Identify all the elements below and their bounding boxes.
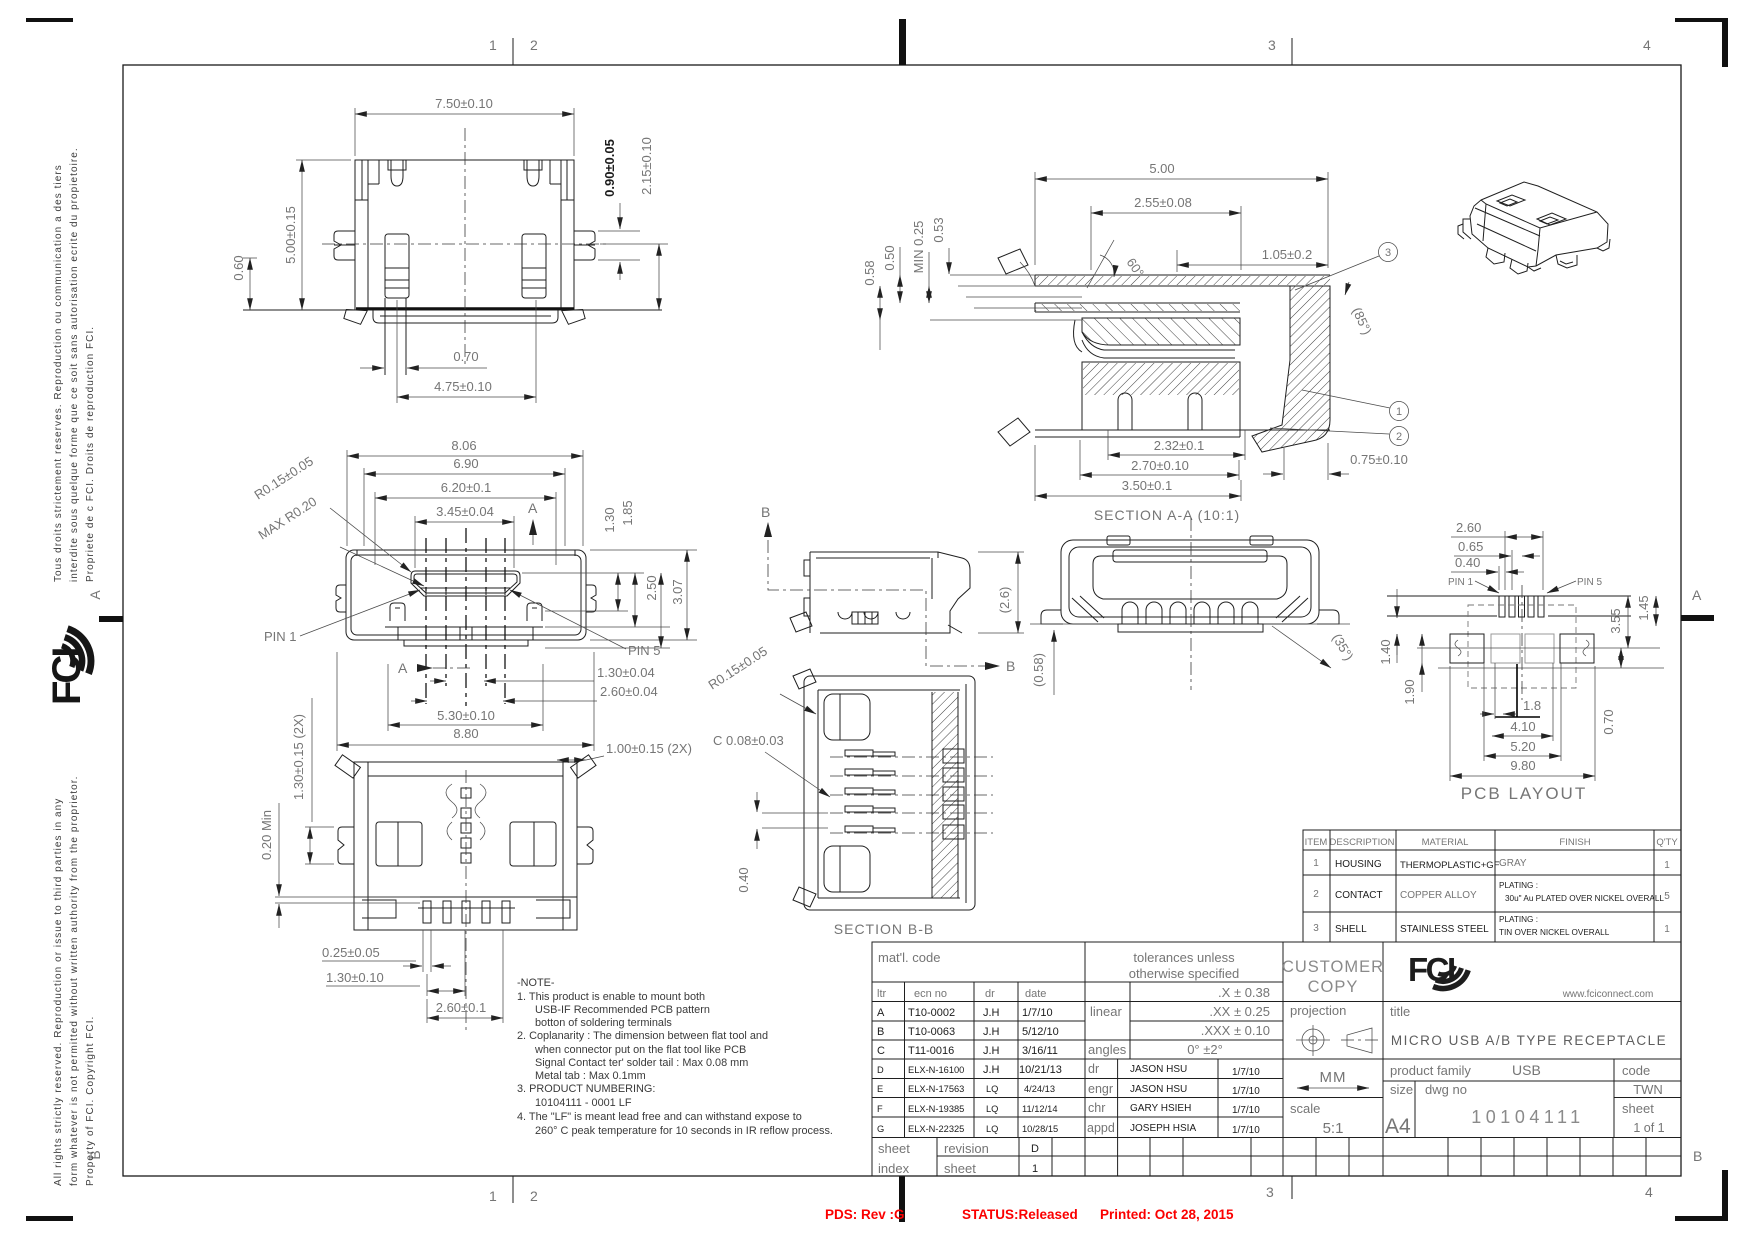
svg-text:CUSTOMER: CUSTOMER — [1282, 958, 1384, 976]
svg-text:0.25±0.05: 0.25±0.05 — [322, 945, 380, 960]
svg-text:PIN 1: PIN 1 — [264, 629, 297, 644]
svg-text:10/28/15: 10/28/15 — [1022, 1124, 1058, 1134]
svg-text:sheet: sheet — [1622, 1101, 1654, 1116]
svg-text:PDS: Rev :G: PDS: Rev :G — [825, 1207, 905, 1222]
svg-text:G: G — [877, 1124, 884, 1134]
svg-text:COPY: COPY — [1308, 978, 1359, 996]
svg-text:J.H: J.H — [983, 1045, 1000, 1057]
svg-text:1: 1 — [1032, 1163, 1038, 1175]
svg-text:Propriete de c FCI. Droits de: Propriete de c FCI. Droits de reproducti… — [85, 326, 96, 582]
svg-text:title: title — [1390, 1004, 1410, 1019]
svg-text:2.50: 2.50 — [644, 575, 659, 600]
svg-text:www.fciconnect.com: www.fciconnect.com — [1562, 989, 1654, 1000]
svg-text:appd: appd — [1087, 1121, 1115, 1135]
svg-text:4: 4 — [1643, 37, 1651, 53]
svg-text:.X ± 0.38: .X ± 0.38 — [1218, 985, 1270, 1000]
svg-text:1/7/10: 1/7/10 — [1232, 1086, 1260, 1097]
svg-text:tolerances unless: tolerances unless — [1133, 950, 1235, 965]
svg-text:MATERIAL: MATERIAL — [1422, 837, 1469, 848]
svg-text:T11-0016: T11-0016 — [908, 1045, 954, 1057]
svg-text:A: A — [87, 590, 103, 600]
svg-text:mat'l. code: mat'l. code — [878, 950, 940, 965]
svg-text:4. The "LF" is meant lead free: 4. The "LF" is meant lead free and can w… — [517, 1111, 802, 1123]
svg-text:form whatever is not permitted: form whatever is not permitted without w… — [69, 776, 80, 1186]
svg-text:1.30: 1.30 — [602, 507, 617, 532]
svg-text:1 of 1: 1 of 1 — [1633, 1121, 1664, 1135]
svg-text:JASON HSU: JASON HSU — [1130, 1084, 1187, 1095]
svg-text:3: 3 — [1266, 1184, 1274, 1200]
svg-text:2.55±0.08: 2.55±0.08 — [1134, 195, 1192, 210]
svg-text:GRAY: GRAY — [1499, 858, 1527, 869]
svg-text:J.H: J.H — [983, 1064, 1000, 1076]
svg-text:6.90: 6.90 — [453, 456, 478, 471]
svg-text:0.58: 0.58 — [862, 260, 877, 285]
svg-text:1: 1 — [1313, 858, 1319, 869]
svg-text:dr: dr — [985, 988, 995, 1000]
svg-text:4: 4 — [1645, 1184, 1653, 1200]
svg-text:0.50: 0.50 — [882, 245, 897, 270]
svg-text:MICRO USB A/B TYPE RECEPTA: MICRO USB A/B TYPE RECEPTACLE — [1391, 1033, 1667, 1048]
svg-text:3.07: 3.07 — [670, 579, 685, 604]
svg-text:LQ: LQ — [986, 1084, 998, 1094]
svg-text:5:1: 5:1 — [1323, 1120, 1344, 1137]
svg-text:1.30±0.15 (2X): 1.30±0.15 (2X) — [291, 714, 306, 800]
svg-text:2: 2 — [530, 1188, 538, 1204]
svg-text:size: size — [1390, 1082, 1413, 1097]
svg-text:3.55: 3.55 — [1608, 608, 1623, 633]
svg-text:THERMOPLASTIC+GF: THERMOPLASTIC+GF — [1400, 860, 1500, 871]
svg-text:Q'TY: Q'TY — [1656, 837, 1678, 848]
svg-text:SECTION B-B: SECTION B-B — [834, 921, 934, 937]
svg-text:1: 1 — [489, 37, 497, 53]
svg-text:PIN 1: PIN 1 — [1448, 577, 1473, 588]
svg-text:1.00±0.15 (2X): 1.00±0.15 (2X) — [606, 741, 692, 756]
svg-text:10104111 - 0001 LF: 10104111 - 0001 LF — [535, 1097, 632, 1109]
svg-text:2: 2 — [1396, 431, 1402, 443]
svg-text:MIN 0.25: MIN 0.25 — [911, 221, 926, 274]
svg-text:2.60: 2.60 — [1456, 520, 1481, 535]
svg-text:3: 3 — [1385, 247, 1391, 259]
svg-text:.XX ± 0.25: .XX ± 0.25 — [1209, 1004, 1270, 1019]
svg-text:ELX-N-17563: ELX-N-17563 — [908, 1084, 964, 1094]
svg-text:B: B — [1693, 1148, 1702, 1164]
svg-text:PCB LAYOUT: PCB LAYOUT — [1461, 784, 1587, 803]
svg-text:interdite sous quelque forme q: interdite sous quelque forme que ce soit… — [69, 147, 80, 582]
svg-text:J.H: J.H — [983, 1026, 1000, 1038]
svg-text:USB: USB — [1512, 1062, 1541, 1078]
svg-text:0.40: 0.40 — [736, 867, 751, 892]
svg-text:FINISH: FINISH — [1559, 837, 1590, 848]
svg-text:revision: revision — [944, 1141, 989, 1156]
svg-text:engr: engr — [1088, 1082, 1113, 1096]
svg-text:botton of soldering terminals: botton of soldering terminals — [535, 1017, 672, 1029]
svg-text:1.40: 1.40 — [1378, 639, 1393, 664]
svg-text:A: A — [398, 660, 408, 676]
svg-text:D: D — [1031, 1143, 1039, 1155]
svg-text:7.50±0.10: 7.50±0.10 — [435, 96, 493, 111]
svg-text:A4: A4 — [1385, 1115, 1411, 1138]
svg-text:otherwise specified: otherwise specified — [1129, 966, 1240, 981]
svg-text:Printed: Oct 28, 2015: Printed: Oct 28, 2015 — [1100, 1207, 1234, 1222]
svg-text:1.8: 1.8 — [1523, 698, 1541, 713]
svg-text:PLATING :: PLATING : — [1499, 915, 1538, 924]
svg-text:ecn no: ecn no — [914, 988, 947, 1000]
svg-text:scale: scale — [1290, 1101, 1320, 1116]
svg-text:LQ: LQ — [986, 1124, 998, 1134]
svg-text:.XXX ± 0.10: .XXX ± 0.10 — [1201, 1023, 1270, 1038]
svg-text:A: A — [1692, 587, 1702, 603]
svg-text:1: 1 — [1664, 924, 1670, 935]
svg-text:0.65: 0.65 — [1458, 539, 1483, 554]
svg-text:MM: MM — [1320, 1069, 1347, 1086]
svg-text:JASON HSU: JASON HSU — [1130, 1064, 1187, 1075]
svg-text:2.70±0.10: 2.70±0.10 — [1131, 458, 1189, 473]
svg-text:PIN 5: PIN 5 — [628, 643, 661, 658]
svg-text:Metal tab : Max 0.1mm: Metal tab : Max 0.1mm — [535, 1070, 646, 1082]
svg-text:1: 1 — [1396, 406, 1402, 418]
svg-text:0.70: 0.70 — [1601, 709, 1616, 734]
svg-text:date: date — [1025, 988, 1046, 1000]
svg-text:T10-0063: T10-0063 — [908, 1026, 955, 1038]
svg-text:CONTACT: CONTACT — [1335, 890, 1383, 901]
svg-text:4/24/13: 4/24/13 — [1024, 1084, 1055, 1094]
svg-text:10/21/13: 10/21/13 — [1019, 1064, 1062, 1076]
svg-text:10104111: 10104111 — [1471, 1107, 1584, 1127]
svg-text:angles: angles — [1088, 1042, 1127, 1057]
svg-text:1: 1 — [1664, 860, 1670, 871]
svg-text:Tous droits strictement reserv: Tous droits strictement reserves. Reprod… — [53, 164, 64, 582]
svg-text:chr: chr — [1088, 1101, 1105, 1115]
svg-text:STAINLESS STEEL: STAINLESS STEEL — [1400, 924, 1489, 935]
svg-text:All rights strictly reserved.: All rights strictly reserved. Reproducti… — [53, 798, 64, 1186]
svg-text:F: F — [877, 1104, 883, 1114]
svg-text:ELX-N-22325: ELX-N-22325 — [908, 1124, 964, 1134]
svg-text:ELX-N-19385: ELX-N-19385 — [908, 1104, 964, 1114]
svg-text:5.20: 5.20 — [1510, 739, 1535, 754]
svg-text:ltr: ltr — [877, 988, 887, 1000]
svg-text:1: 1 — [489, 1188, 497, 1204]
svg-text:2: 2 — [1313, 889, 1319, 900]
svg-text:B: B — [877, 1026, 884, 1038]
svg-text:8.06: 8.06 — [451, 438, 476, 453]
svg-text:ITEM: ITEM — [1305, 837, 1328, 848]
svg-text:1.85: 1.85 — [620, 500, 635, 525]
svg-text:2.60±0.04: 2.60±0.04 — [600, 684, 658, 699]
svg-text:0.60: 0.60 — [231, 255, 246, 280]
svg-text:1. This product is enable to m: 1. This product is enable to mount both — [517, 991, 705, 1003]
svg-text:11/12/14: 11/12/14 — [1022, 1104, 1058, 1114]
svg-text:dr: dr — [1088, 1062, 1099, 1076]
svg-text:5.00±0.15: 5.00±0.15 — [283, 206, 298, 264]
svg-text:3. PRODUCT NUMBERING:: 3. PRODUCT NUMBERING: — [517, 1083, 655, 1095]
svg-text:STATUS:Released: STATUS:Released — [962, 1207, 1078, 1222]
svg-text:3: 3 — [1268, 37, 1276, 53]
svg-text:5/12/10: 5/12/10 — [1022, 1026, 1059, 1038]
svg-text:TWN: TWN — [1633, 1082, 1663, 1097]
svg-text:6.20±0.1: 6.20±0.1 — [441, 480, 492, 495]
svg-text:5.00: 5.00 — [1149, 161, 1174, 176]
svg-text:3/16/11: 3/16/11 — [1022, 1045, 1058, 1057]
svg-text:2.32±0.1: 2.32±0.1 — [1154, 438, 1205, 453]
svg-text:8.80: 8.80 — [453, 726, 478, 741]
svg-text:1/7/10: 1/7/10 — [1232, 1067, 1260, 1078]
svg-text:0.53: 0.53 — [931, 217, 946, 242]
svg-text:C 0.08±0.03: C 0.08±0.03 — [713, 733, 784, 748]
svg-text:when connector put on the flat: when connector put on the flat tool like… — [534, 1044, 746, 1056]
svg-text:T10-0002: T10-0002 — [908, 1007, 955, 1019]
svg-text:1.05±0.2: 1.05±0.2 — [1262, 247, 1313, 262]
svg-text:index: index — [878, 1161, 910, 1176]
svg-text:HOUSING: HOUSING — [1335, 859, 1382, 870]
svg-text:B: B — [1006, 658, 1015, 674]
svg-text:4.10: 4.10 — [1510, 719, 1535, 734]
svg-text:1/7/10: 1/7/10 — [1022, 1007, 1053, 1019]
svg-text:LQ: LQ — [986, 1104, 998, 1114]
svg-text:product family: product family — [1390, 1063, 1471, 1078]
svg-text:2: 2 — [530, 37, 538, 53]
svg-text:1.90: 1.90 — [1402, 679, 1417, 704]
svg-text:J.H: J.H — [983, 1007, 1000, 1019]
svg-text:0.70: 0.70 — [453, 349, 478, 364]
svg-text:260° C peak temperature for 10: 260° C peak temperature for 10 seconds i… — [535, 1125, 833, 1137]
svg-text:1.30±0.10: 1.30±0.10 — [326, 970, 384, 985]
svg-text:DESCRIPTION: DESCRIPTION — [1330, 837, 1395, 848]
svg-text:GARY HSIEH: GARY HSIEH — [1130, 1103, 1191, 1114]
svg-text:3.50±0.1: 3.50±0.1 — [1122, 478, 1173, 493]
svg-text:0.90±0.05: 0.90±0.05 — [602, 139, 617, 197]
svg-text:sheet: sheet — [878, 1141, 910, 1156]
svg-text:ELX-N-16100: ELX-N-16100 — [908, 1065, 964, 1075]
svg-text:1/7/10: 1/7/10 — [1232, 1125, 1260, 1136]
svg-text:D: D — [877, 1065, 884, 1075]
svg-text:0.20 Min: 0.20 Min — [259, 810, 274, 860]
svg-text:SECTION A-A (10:1): SECTION A-A (10:1) — [1094, 507, 1240, 523]
svg-text:-NOTE-: -NOTE- — [517, 977, 555, 989]
svg-text:E: E — [877, 1084, 883, 1094]
svg-text:0.40: 0.40 — [1455, 555, 1480, 570]
svg-text:3.45±0.04: 3.45±0.04 — [436, 504, 494, 519]
svg-text:A: A — [528, 500, 538, 516]
svg-text:A: A — [877, 1007, 885, 1019]
svg-text:5: 5 — [1664, 891, 1670, 902]
svg-text:dwg no: dwg no — [1425, 1082, 1467, 1097]
svg-text:SHELL: SHELL — [1335, 924, 1367, 935]
svg-text:PLATING :: PLATING : — [1499, 881, 1538, 890]
svg-text:C: C — [877, 1045, 885, 1057]
svg-text:1.30±0.04: 1.30±0.04 — [597, 665, 655, 680]
svg-text:0° ±2°: 0° ±2° — [1187, 1042, 1223, 1057]
svg-text:TIN OVER NICKEL OVERALL: TIN OVER NICKEL OVERALL — [1499, 928, 1610, 937]
svg-text:1.45: 1.45 — [1636, 595, 1651, 620]
svg-text:2.15±0.10: 2.15±0.10 — [639, 137, 654, 195]
svg-text:(2.6): (2.6) — [997, 587, 1012, 614]
svg-text:JOSEPH HSIA: JOSEPH HSIA — [1130, 1123, 1196, 1134]
svg-text:4.75±0.10: 4.75±0.10 — [434, 379, 492, 394]
svg-text:projection: projection — [1290, 1003, 1346, 1018]
svg-text:3: 3 — [1313, 923, 1319, 934]
svg-text:PIN 5: PIN 5 — [1577, 577, 1602, 588]
svg-text:COPPER ALLOY: COPPER ALLOY — [1400, 890, 1477, 901]
svg-text:(0.58): (0.58) — [1031, 653, 1046, 687]
svg-text:B: B — [761, 504, 770, 520]
svg-text:USB-IF Recommended PCB pattern: USB-IF Recommended PCB pattern — [535, 1004, 710, 1016]
svg-text:code: code — [1622, 1063, 1650, 1078]
svg-text:2.60±0.1: 2.60±0.1 — [436, 1000, 487, 1015]
svg-text:Property of FCI. Copyright FC: Property of FCI. Copyright FCI. — [85, 1016, 96, 1186]
svg-text:0.75±0.10: 0.75±0.10 — [1350, 452, 1408, 467]
svg-text:2. Coplanarity : The dimension: 2. Coplanarity : The dimension between f… — [517, 1030, 768, 1042]
svg-text:30u" Au PLATED OVER NICKEL OVE: 30u" Au PLATED OVER NICKEL OVERALL — [1505, 894, 1664, 903]
svg-text:1/7/10: 1/7/10 — [1232, 1105, 1260, 1116]
svg-text:5.30±0.10: 5.30±0.10 — [437, 708, 495, 723]
svg-text:linear: linear — [1090, 1004, 1122, 1019]
svg-text:Signal Contact ter' solder tai: Signal Contact ter' solder tail : Max 0.… — [535, 1057, 748, 1069]
svg-text:9.80: 9.80 — [1510, 758, 1535, 773]
svg-text:sheet: sheet — [944, 1161, 976, 1176]
